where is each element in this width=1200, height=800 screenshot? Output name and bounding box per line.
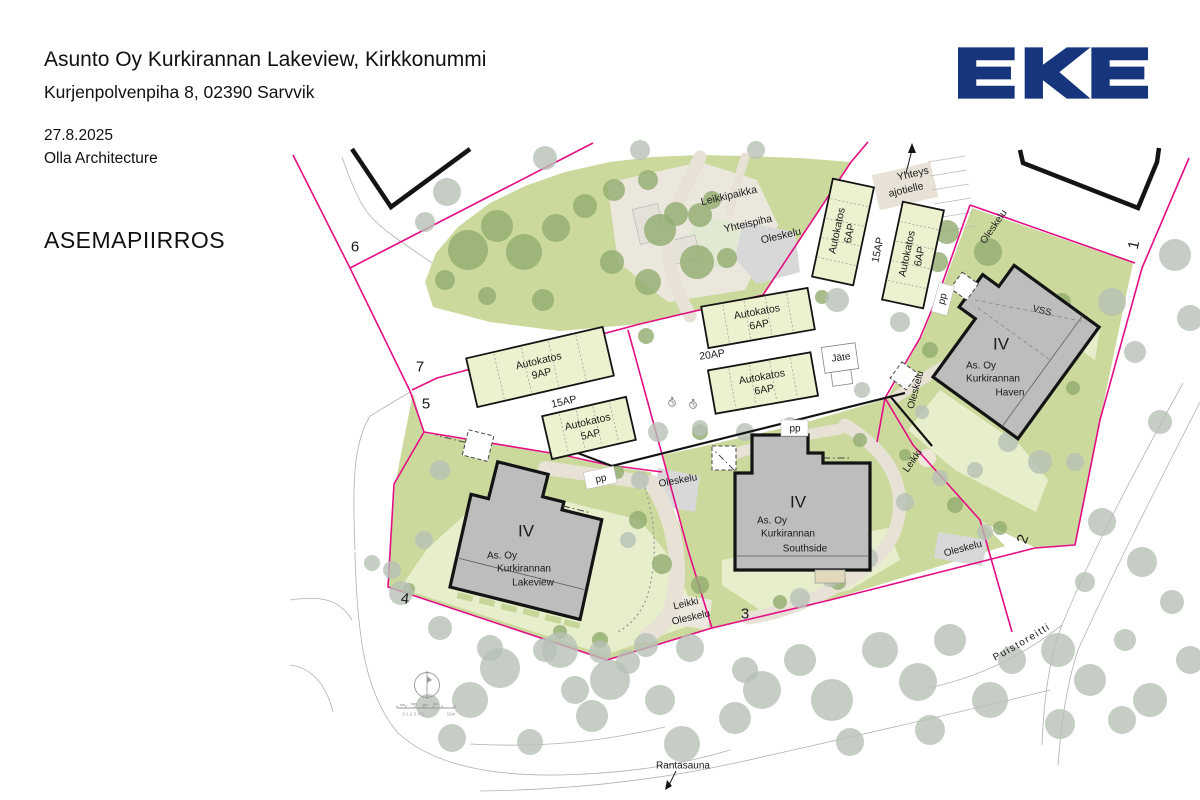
building-name-haven: Kurkirannan xyxy=(966,374,1020,385)
plot-number: 3 xyxy=(741,606,749,623)
area-label: pp xyxy=(789,424,801,435)
scale-unit: 10m xyxy=(447,712,456,717)
building-name-lakeview: As. Oy xyxy=(487,551,517,562)
site-plan: Autokatos9APAutokatos5APAutokatos6APAuto… xyxy=(0,0,1200,800)
building-name-lakeview: Lakeview xyxy=(512,578,554,589)
plot-number: 1 xyxy=(1125,239,1143,251)
area-label: Rantasauna xyxy=(656,761,710,772)
area-label: 20AP xyxy=(698,347,725,362)
page: Asunto Oy Kurkirannan Lakeview, Kirkkonu… xyxy=(0,0,1200,800)
carport: Autokatos9AP xyxy=(466,327,614,407)
building-name-southside: Southside xyxy=(783,544,828,555)
carport: Autokatos6AP xyxy=(882,202,944,309)
accessible-parking-icon xyxy=(668,396,697,409)
building-name-haven: As. Oy xyxy=(966,361,996,372)
waste-shelter xyxy=(821,343,860,387)
rantasauna-arrow xyxy=(665,771,676,790)
plot-number: 6 xyxy=(351,239,359,256)
building-floors-lakeview: IV xyxy=(518,522,535,541)
scale-numbers: 0 1 2 3 4 5 xyxy=(402,712,424,717)
building-floors-southside: IV xyxy=(790,493,807,512)
building-name-southside: Kurkirannan xyxy=(761,529,815,540)
carport: Autokatos6AP xyxy=(708,352,818,413)
building-name-haven: Haven xyxy=(996,388,1025,399)
building-name-lakeview: Kurkirannan xyxy=(497,564,551,575)
building-floors-haven: IV xyxy=(993,335,1010,354)
area-label: 15AP xyxy=(869,236,886,264)
plot-number: 7 xyxy=(416,359,424,376)
building-name-southside: As. Oy xyxy=(757,516,787,527)
plot-number: 5 xyxy=(422,396,430,413)
north-arrow xyxy=(415,671,440,699)
plot-number: 4 xyxy=(400,590,411,608)
